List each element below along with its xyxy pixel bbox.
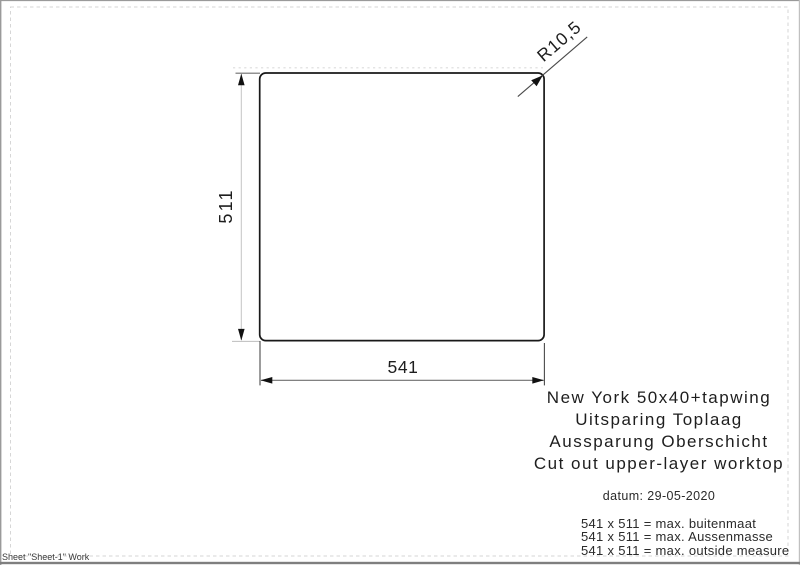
svg-text:R10,5: R10,5 [533,17,585,66]
svg-text:541: 541 [388,357,419,377]
svg-text:511: 511 [216,188,236,223]
